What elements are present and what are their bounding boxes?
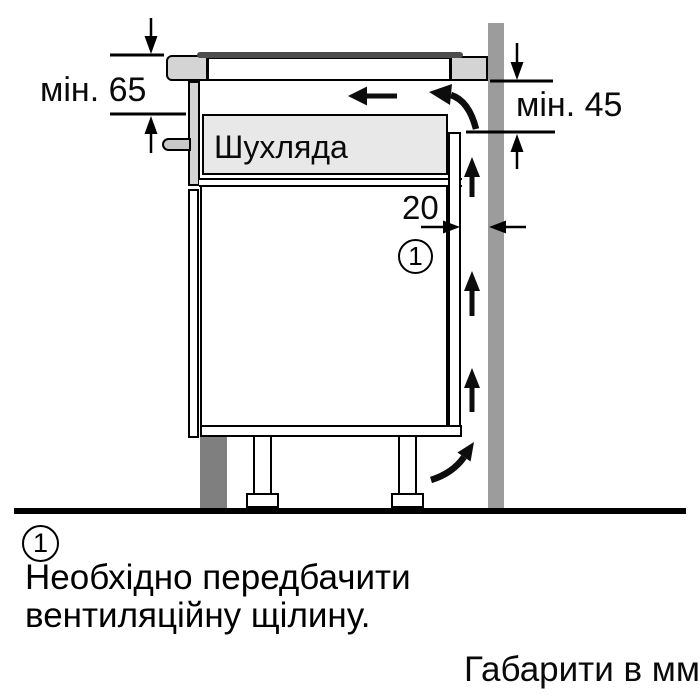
dimension-label-gap20: 20 bbox=[402, 190, 439, 226]
hob-glass-panel bbox=[197, 52, 463, 58]
drawer-handle bbox=[162, 138, 191, 151]
callout-1-marker: 1 bbox=[398, 239, 433, 274]
cabinet-plinth bbox=[200, 437, 227, 508]
footnote-1-marker: 1 bbox=[22, 525, 59, 562]
cabinet-leg-stem bbox=[398, 437, 417, 495]
footnote-text: Необхідно передбачити вентиляційну щілин… bbox=[25, 559, 411, 635]
airflow-arrow-curved-bottom bbox=[431, 442, 474, 480]
cabinet-front-frame bbox=[188, 189, 199, 438]
worktop-left-section bbox=[166, 55, 208, 81]
cabinet-leg-foot bbox=[246, 493, 279, 508]
airflow-arrow-up-2 bbox=[464, 271, 480, 316]
dimension-label-min45: мін. 45 bbox=[516, 87, 622, 124]
units-note: Габарити в мм bbox=[464, 651, 700, 690]
arrow-down-icon bbox=[145, 36, 158, 54]
floor-line bbox=[14, 508, 686, 514]
installation-diagram: мін. 65 мін. 45 20 Шухляда 1 1 Необхідно… bbox=[0, 0, 700, 700]
cabinet-leg-foot bbox=[391, 493, 424, 508]
footnote-line-2: вентиляційну щілину. bbox=[25, 597, 411, 635]
drawer-rail bbox=[199, 178, 462, 187]
footnote-line-1: Необхідно передбачити bbox=[25, 559, 411, 597]
worktop-right-section bbox=[450, 56, 488, 81]
callout-1-number: 1 bbox=[408, 241, 422, 272]
wall-section bbox=[488, 23, 504, 508]
airflow-arrow-up-3 bbox=[464, 368, 480, 412]
cabinet-leg-stem bbox=[253, 437, 272, 495]
cabinet-bottom-panel bbox=[200, 425, 462, 437]
arrow-up-icon bbox=[511, 134, 524, 152]
footnote-1-number: 1 bbox=[33, 528, 48, 559]
airflow-arrow-up-1 bbox=[464, 157, 480, 197]
arrow-up-icon bbox=[145, 116, 158, 134]
cabinet-side-panel bbox=[448, 132, 461, 427]
drawer-label: Шухляда bbox=[214, 130, 348, 165]
drawer-front-panel bbox=[188, 81, 200, 186]
dimension-label-min65: мін. 65 bbox=[40, 72, 146, 109]
hob-body bbox=[207, 57, 451, 81]
arrow-down-icon bbox=[511, 62, 524, 80]
airflow-arrow-left bbox=[348, 87, 397, 106]
